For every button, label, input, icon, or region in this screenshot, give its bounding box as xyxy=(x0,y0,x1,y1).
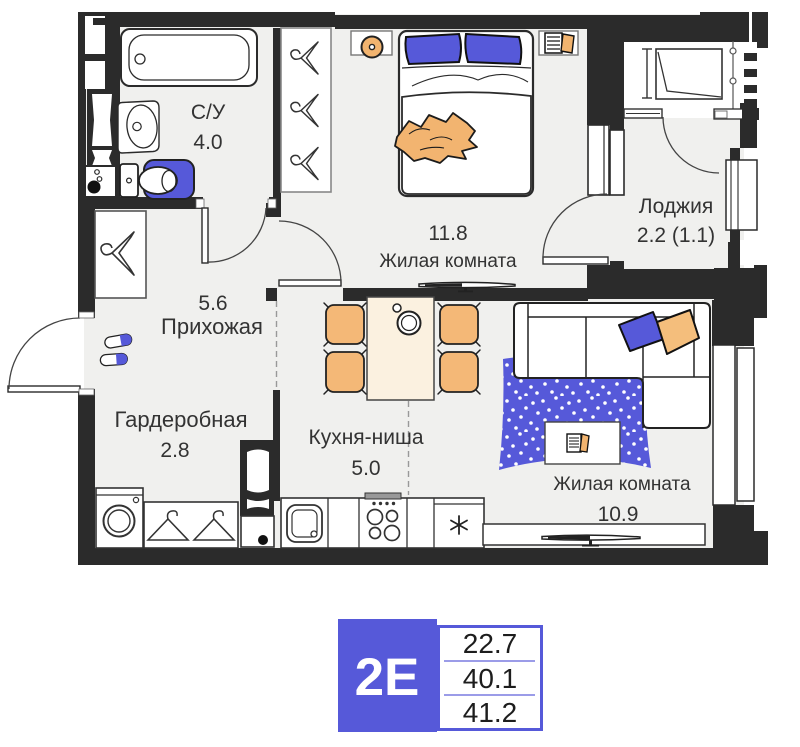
svg-text:Лоджия: Лоджия xyxy=(639,195,713,218)
svg-text:Жилая комната: Жилая комната xyxy=(379,251,517,272)
svg-text:2.8: 2.8 xyxy=(160,439,189,462)
svg-text:41.2: 41.2 xyxy=(463,697,518,728)
svg-text:Прихожая: Прихожая xyxy=(161,314,263,339)
svg-text:Гардеробная: Гардеробная xyxy=(114,407,247,432)
svg-text:Жилая комната: Жилая комната xyxy=(553,474,691,495)
svg-text:11.8: 11.8 xyxy=(428,222,467,245)
svg-text:40.1: 40.1 xyxy=(463,663,518,694)
svg-text:2Е: 2Е xyxy=(355,648,420,707)
svg-text:Кухня-ниша: Кухня-ниша xyxy=(308,426,423,449)
svg-text:4.0: 4.0 xyxy=(193,131,222,154)
svg-text:С/У: С/У xyxy=(191,101,226,124)
svg-text:5.0: 5.0 xyxy=(351,457,380,480)
svg-text:5.6: 5.6 xyxy=(198,292,227,315)
svg-text:2.2 (1.1): 2.2 (1.1) xyxy=(637,224,715,247)
svg-text:10.9: 10.9 xyxy=(598,503,639,526)
svg-text:22.7: 22.7 xyxy=(463,628,518,659)
